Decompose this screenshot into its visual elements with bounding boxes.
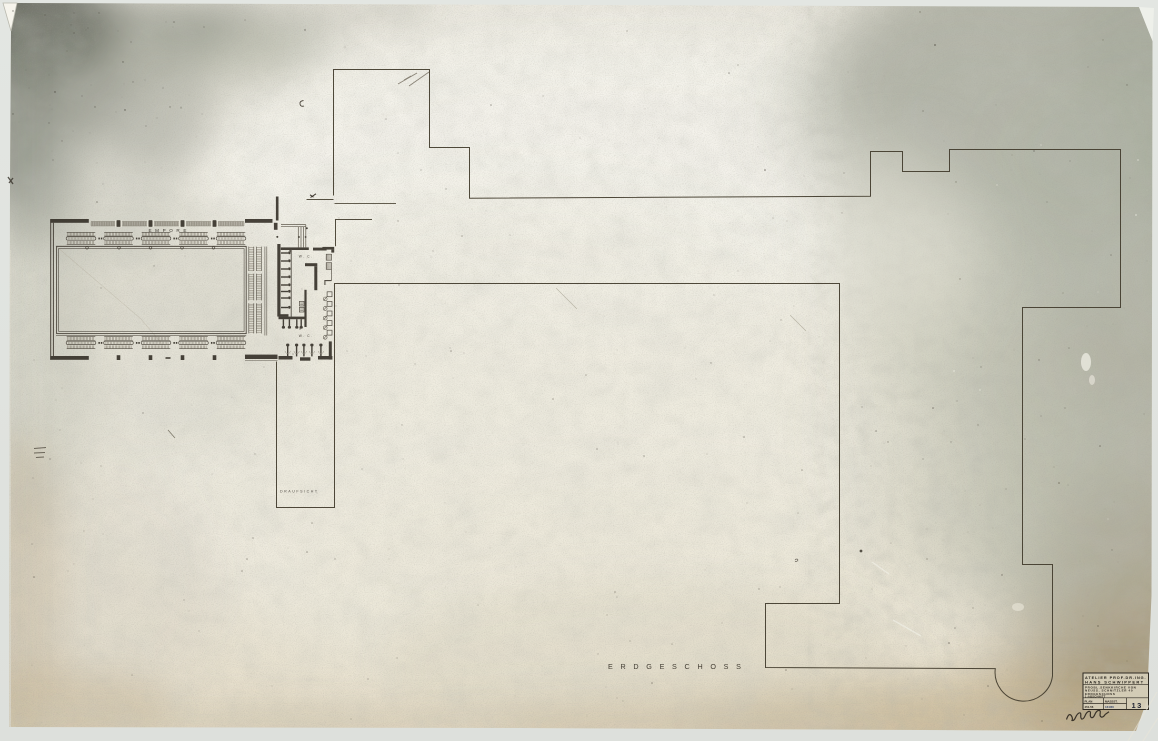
svg-text:HANS SCHWIPPERT: HANS SCHWIPPERT xyxy=(1085,680,1144,685)
svg-text:DRAUFSICHT: DRAUFSICHT xyxy=(280,490,319,494)
svg-text:451.56: 451.56 xyxy=(1085,705,1094,709)
svg-text:1:ABSCHNITT: 1:ABSCHNITT xyxy=(1085,695,1106,699)
svg-text:W. C.: W. C. xyxy=(299,334,313,338)
svg-text:PLAN: PLAN xyxy=(1085,700,1093,704)
svg-text:164/66: 164/66 xyxy=(1105,705,1114,709)
svg-text:W. C.: W. C. xyxy=(299,255,313,259)
svg-text:MASSST.: MASSST. xyxy=(1105,700,1118,704)
svg-text:13: 13 xyxy=(1132,701,1143,710)
svg-text:ERDGESCHOSS: ERDGESCHOSS xyxy=(608,662,749,671)
